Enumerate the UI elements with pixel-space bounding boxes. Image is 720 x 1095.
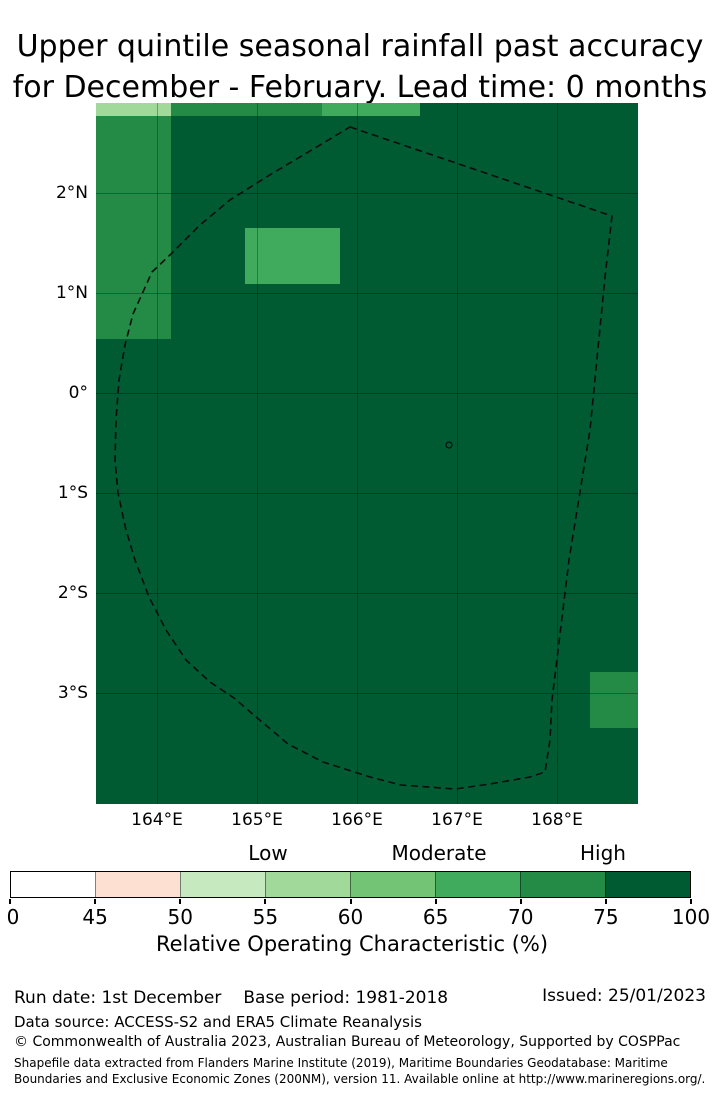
colorbar-tick-label: 60: [338, 905, 363, 929]
lat-tick-label: 3°S: [0, 682, 88, 704]
colorbar-tick-label: 70: [508, 905, 533, 929]
lon-tick-label: 168°E: [531, 809, 583, 831]
colorbar-tickmark: [350, 899, 352, 904]
colorbar-segment-1: [95, 872, 180, 897]
colorbar-tickmark: [9, 899, 11, 904]
lon-tick-label: 165°E: [231, 809, 283, 831]
colorbar-category-low: Low: [248, 841, 287, 865]
colorbar: [10, 871, 691, 898]
colorbar-segment-0: [11, 872, 95, 897]
colorbar-tickmark: [435, 899, 437, 904]
lat-tick-label: 2°N: [0, 182, 88, 204]
colorbar-tick-label: 100: [672, 905, 710, 929]
colorbar-segment-4: [350, 872, 435, 897]
chart-title: Upper quintile seasonal rainfall past ac…: [0, 26, 720, 108]
footer-run-line: Run date: 1st DecemberBase period: 1981-…: [14, 988, 448, 1009]
lon-tick-label: 166°E: [331, 809, 383, 831]
lon-tick-label: 164°E: [131, 809, 183, 831]
eez-boundary-layer: [96, 103, 638, 804]
colorbar-tickmark: [690, 899, 692, 904]
colorbar-segment-3: [265, 872, 350, 897]
lat-tick-label: 0°: [0, 382, 88, 404]
colorbar-tickmark: [264, 899, 266, 904]
colorbar-category-high: High: [580, 841, 626, 865]
colorbar-tick-label: 45: [82, 905, 107, 929]
data-source-label: Data source: ACCESS-S2 and ERA5 Climate …: [14, 1013, 422, 1032]
base-period-label: Base period: 1981-2018: [243, 988, 448, 1008]
colorbar-segment-6: [520, 872, 605, 897]
colorbar-tickmark: [520, 899, 522, 904]
shapefile-attribution-line2: Boundaries and Exclusive Economic Zones …: [14, 1072, 705, 1088]
chart-title-line1: Upper quintile seasonal rainfall past ac…: [0, 26, 720, 67]
copyright-label: © Commonwealth of Australia 2023, Austra…: [14, 1033, 680, 1051]
colorbar-axis-label: Relative Operating Characteristic (%): [156, 931, 548, 957]
chart-title-line2: for December - February. Lead time: 0 mo…: [0, 67, 720, 108]
colorbar-tick-label: 75: [593, 905, 618, 929]
colorbar-tick-label: 65: [423, 905, 448, 929]
lon-tick-label: 167°E: [431, 809, 483, 831]
map-plot-area: [96, 103, 638, 804]
figure: Upper quintile seasonal rainfall past ac…: [0, 0, 720, 1095]
issued-date-label: Issued: 25/01/2023: [542, 986, 706, 1007]
colorbar-segment-5: [435, 872, 520, 897]
colorbar-tick-label: 50: [168, 905, 193, 929]
run-date-label: Run date: 1st December: [14, 988, 221, 1008]
colorbar-tickmark: [179, 899, 181, 904]
eez-boundary-polygon: [115, 127, 612, 789]
colorbar-segment-7: [605, 872, 690, 897]
colorbar-tickmark: [94, 899, 96, 904]
colorbar-tick-label: 0: [7, 905, 20, 929]
colorbar-tickmark: [605, 899, 607, 904]
lat-tick-label: 1°S: [0, 482, 88, 504]
island-marker: [446, 442, 452, 448]
colorbar-tick-label: 55: [253, 905, 278, 929]
colorbar-segment-2: [180, 872, 265, 897]
lat-tick-label: 2°S: [0, 582, 88, 604]
shapefile-attribution-line1: Shapefile data extracted from Flanders M…: [14, 1056, 705, 1072]
lat-tick-label: 1°N: [0, 282, 88, 304]
colorbar-category-moderate: Moderate: [391, 841, 486, 865]
shapefile-attribution: Shapefile data extracted from Flanders M…: [14, 1056, 705, 1087]
